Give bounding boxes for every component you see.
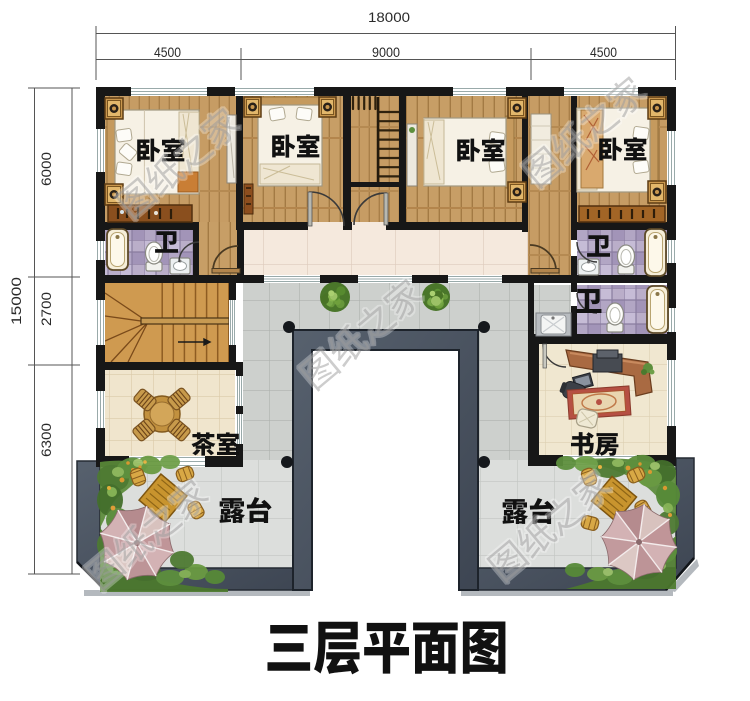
svg-text:2700: 2700 [39,292,54,326]
svg-text:4500: 4500 [154,45,181,60]
svg-text:6300: 6300 [39,423,54,457]
svg-text:4500: 4500 [590,45,617,60]
svg-text:6000: 6000 [39,152,54,186]
svg-text:18000: 18000 [368,10,410,25]
svg-text:9000: 9000 [372,45,400,60]
svg-text:15000: 15000 [9,277,24,325]
